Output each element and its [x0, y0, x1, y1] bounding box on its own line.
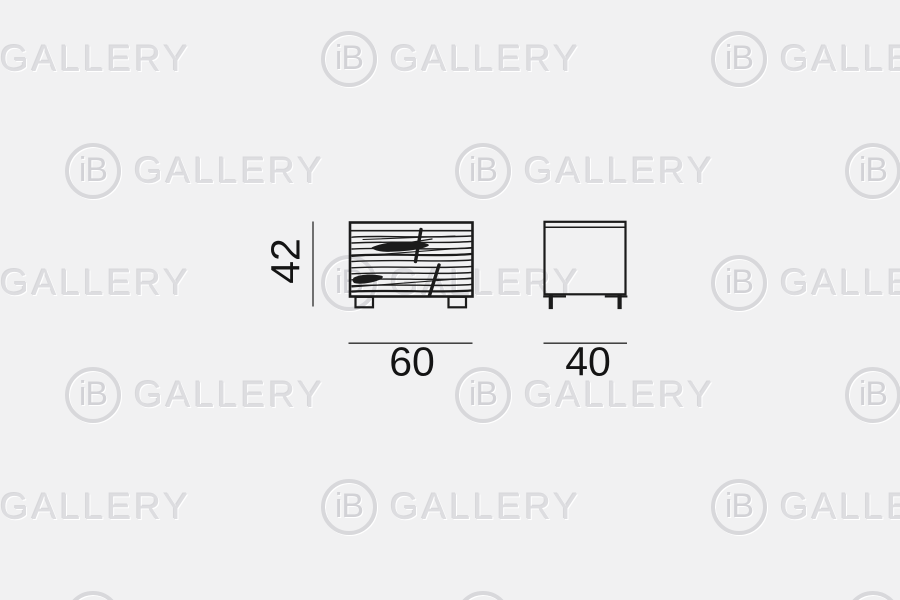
width-dimension-value: 60	[389, 342, 435, 383]
depth-dimension-value: 40	[565, 342, 611, 383]
furniture-line-drawing	[0, 0, 900, 600]
height-dimension-value: 42	[266, 238, 307, 284]
drawing-page: iBGALLERYiBGALLERYiBGALLERYiBGALLERYiBGA…	[0, 0, 900, 600]
side-view	[544, 222, 626, 307]
front-view	[350, 223, 473, 308]
